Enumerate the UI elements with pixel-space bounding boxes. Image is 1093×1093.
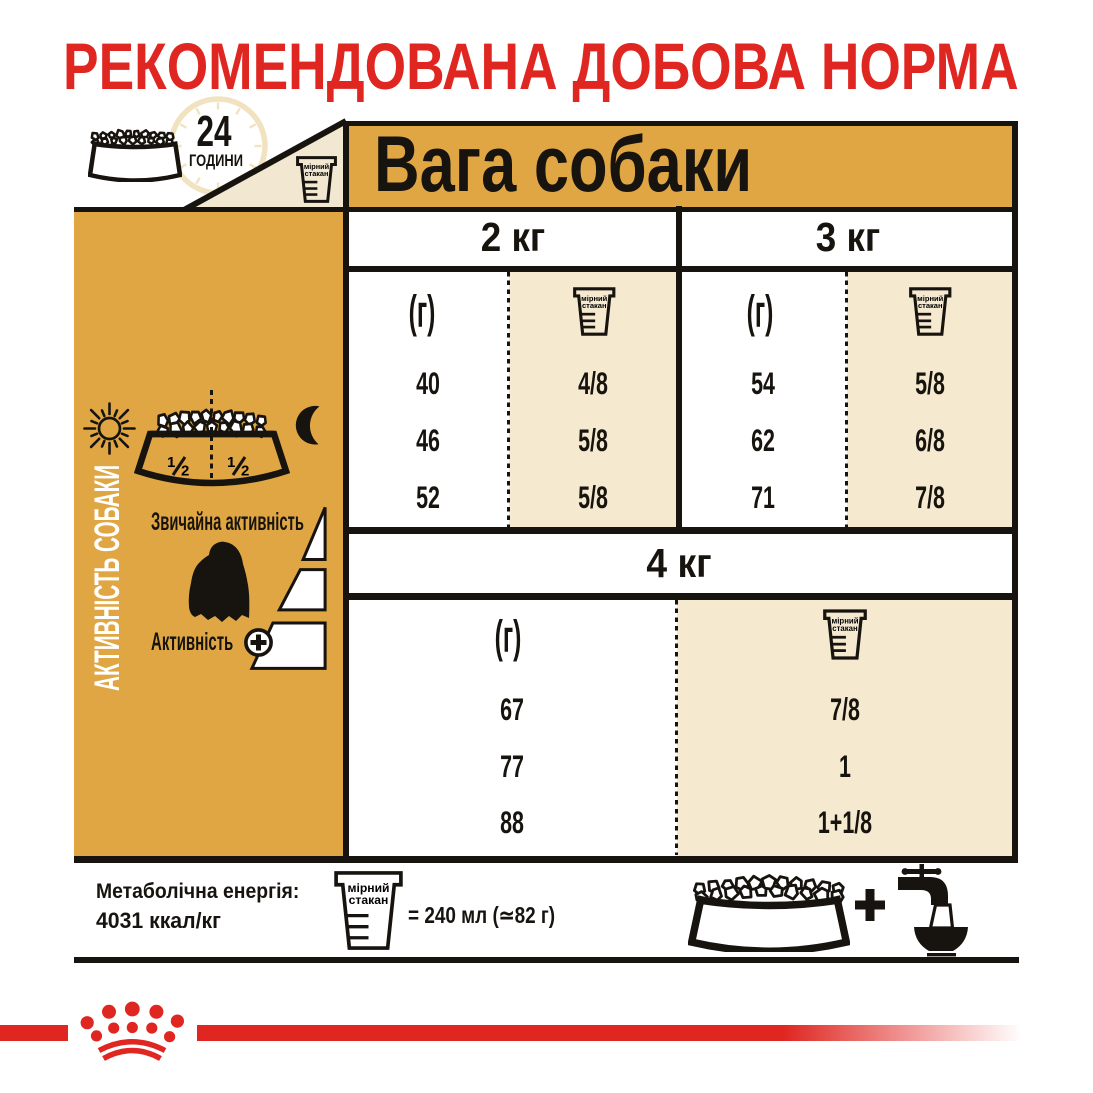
- svg-text:2: 2: [181, 463, 189, 477]
- svg-text:1: 1: [228, 456, 235, 471]
- svg-text:стакан: стакан: [349, 893, 389, 907]
- svg-text:2: 2: [241, 463, 249, 477]
- svg-text:стакан: стакан: [582, 301, 607, 310]
- svg-text:стакан: стакан: [832, 624, 858, 633]
- svg-text:1: 1: [168, 456, 175, 471]
- svg-text:стакан: стакан: [918, 301, 943, 310]
- svg-text:стакан: стакан: [305, 169, 329, 178]
